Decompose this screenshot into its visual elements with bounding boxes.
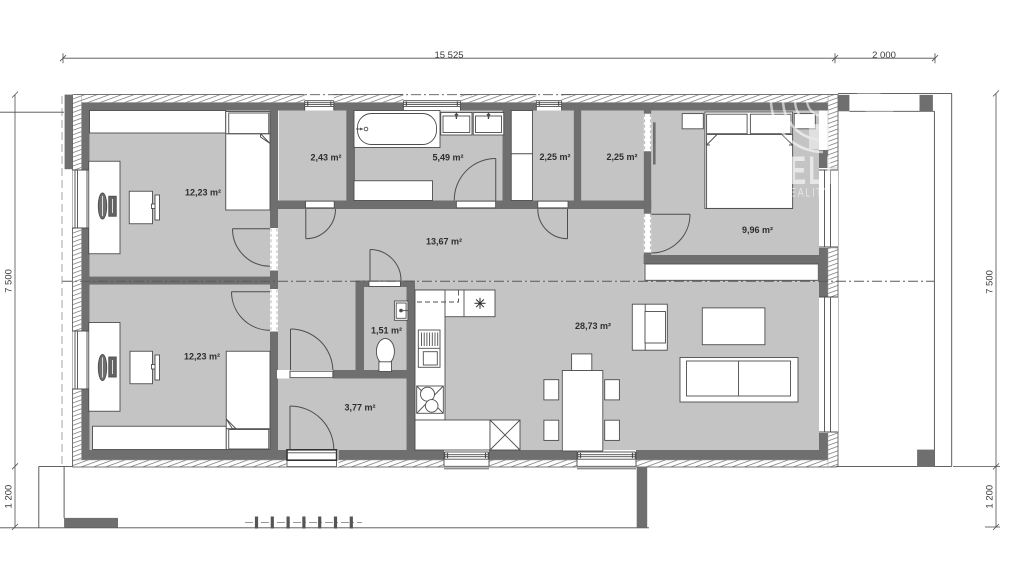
svg-text:2,43 m²: 2,43 m² [310,153,341,163]
svg-text:ELI: ELI [790,148,835,193]
svg-text:1 200: 1 200 [3,485,14,509]
svg-text:2,25 m²: 2,25 m² [539,152,570,162]
svg-text:13,67 m²: 13,67 m² [426,237,462,247]
svg-text:12,23 m²: 12,23 m² [185,188,221,198]
svg-text:2,25 m²: 2,25 m² [606,152,637,162]
svg-text:15 525: 15 525 [434,50,463,61]
svg-text:5,49 m²: 5,49 m² [432,153,463,163]
svg-text:1,51 m²: 1,51 m² [371,326,402,336]
svg-text:12,23 m²: 12,23 m² [184,352,220,362]
svg-text:9,96 m²: 9,96 m² [742,225,773,235]
svg-text:3,77 m²: 3,77 m² [344,403,375,413]
svg-text:7 500: 7 500 [3,269,14,293]
svg-text:1 200: 1 200 [985,485,996,509]
svg-text:EALITY: EALITY [790,188,831,200]
svg-text:7 500: 7 500 [985,270,996,294]
svg-text:28,73 m²: 28,73 m² [575,321,611,331]
svg-text:2 000: 2 000 [872,50,896,61]
